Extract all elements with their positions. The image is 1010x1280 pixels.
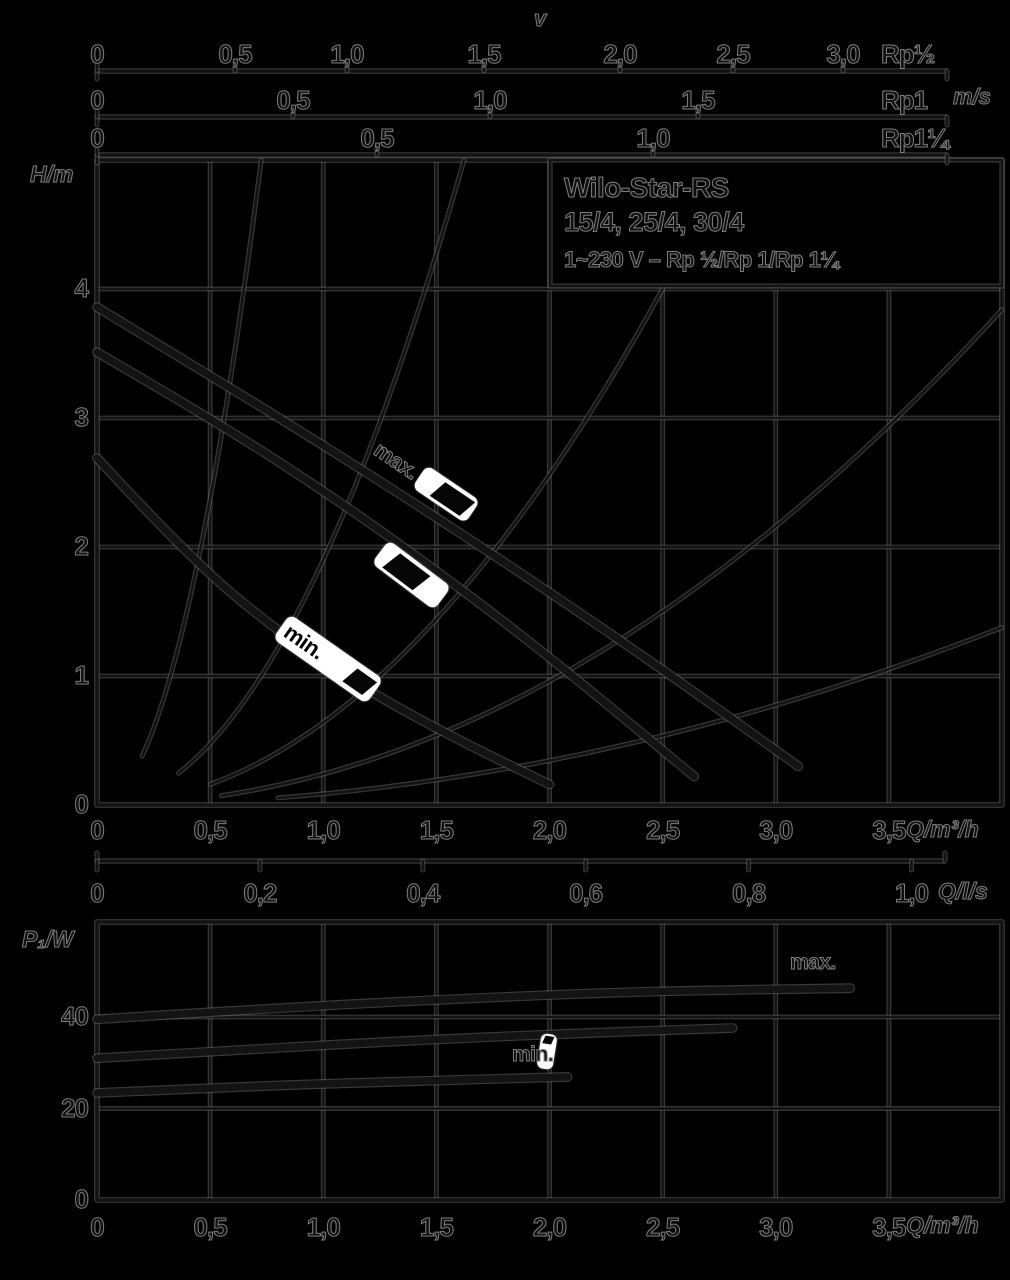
tick-label: 4 xyxy=(42,275,88,301)
power-axis-label: P₁/W xyxy=(22,928,74,951)
tick-label: 2 xyxy=(42,533,88,559)
tick-label: 1,0 xyxy=(307,817,340,843)
tick-label: 3,0 xyxy=(826,41,859,67)
tick-label: 3,0 xyxy=(759,817,792,843)
tick-label: 1,0 xyxy=(895,880,928,906)
velocity-axis-title: v xyxy=(534,8,546,30)
tick-label: 0,5 xyxy=(194,1214,227,1240)
tick-label: 0 xyxy=(90,87,103,113)
tick-label: 0,5 xyxy=(360,125,393,151)
tick-label: 2,5 xyxy=(646,1214,679,1240)
tick-label: 1,5 xyxy=(467,41,500,67)
tick-label: 0,5 xyxy=(218,41,251,67)
tick-label: 2,5 xyxy=(646,817,679,843)
tick-label: 0 xyxy=(90,880,103,906)
title-product-name: Wilo-Star-RS xyxy=(564,174,729,202)
chart-canvas xyxy=(0,0,1010,1280)
title-model-numbers: 15/4, 25/4, 30/4 xyxy=(564,209,744,236)
power-max-curve-label: max. xyxy=(790,952,836,973)
flow-axis-label-main: Q/m³/h xyxy=(906,818,979,841)
rp-one-label: Rp1 xyxy=(881,87,927,113)
tick-label: 0 xyxy=(90,41,103,67)
tick-label: 0 xyxy=(90,125,103,151)
tick-label: 2,0 xyxy=(603,41,636,67)
power-min-curve-label-group: min. xyxy=(512,1044,553,1066)
tick-label: 1,5 xyxy=(420,817,453,843)
tick-label: 0,8 xyxy=(732,880,765,906)
flow-axis-label-ls: Q/l/s xyxy=(938,880,988,903)
title-voltage-connections: 1~230 V – Rp ½/Rp 1/Rp 1¼ xyxy=(564,249,838,271)
pump-curve-chart: v m/s Rp½ Rp1 Rp1¼ Wilo-Star-RS 15/4, 25… xyxy=(0,0,1010,1280)
tick-label: 1,5 xyxy=(681,87,714,113)
tick-label: 0 xyxy=(42,1186,88,1212)
tick-label: 1,0 xyxy=(473,87,506,113)
tick-label: 0 xyxy=(90,1214,103,1240)
tick-label: 0,4 xyxy=(406,880,439,906)
tick-label: 1 xyxy=(42,662,88,688)
flow-axis-label-power: Q/m³/h xyxy=(906,1214,979,1237)
tick-label: 0,2 xyxy=(243,880,276,906)
head-axis-label: H/m xyxy=(30,163,73,186)
rp-one-quarter-label: Rp1¼ xyxy=(881,125,948,151)
tick-label: 1,0 xyxy=(307,1214,340,1240)
rp-half-label: Rp½ xyxy=(881,41,934,67)
tick-label: 0 xyxy=(90,817,103,843)
tick-label: 2,0 xyxy=(533,817,566,843)
tick-label: 0,5 xyxy=(194,817,227,843)
tick-label: 20 xyxy=(42,1095,88,1121)
tick-label: 2,5 xyxy=(716,41,749,67)
tick-label: 3 xyxy=(42,404,88,430)
tick-label: 1,0 xyxy=(330,41,363,67)
speed-selector-icon xyxy=(343,668,378,694)
tick-label: 0,6 xyxy=(569,880,602,906)
tick-label: 0,5 xyxy=(276,87,309,113)
tick-label: 2,0 xyxy=(533,1214,566,1240)
tick-label: 3,0 xyxy=(759,1214,792,1240)
tick-label: 3,5 xyxy=(872,817,905,843)
tick-label: 1,0 xyxy=(636,125,669,151)
tick-label: 1,5 xyxy=(420,1214,453,1240)
tick-label: 3,5 xyxy=(872,1214,905,1240)
velocity-unit-label: m/s xyxy=(953,86,991,108)
power-min-curve-label: min. xyxy=(512,1043,553,1066)
tick-label: 0 xyxy=(42,791,88,817)
tick-label: 40 xyxy=(42,1003,88,1029)
